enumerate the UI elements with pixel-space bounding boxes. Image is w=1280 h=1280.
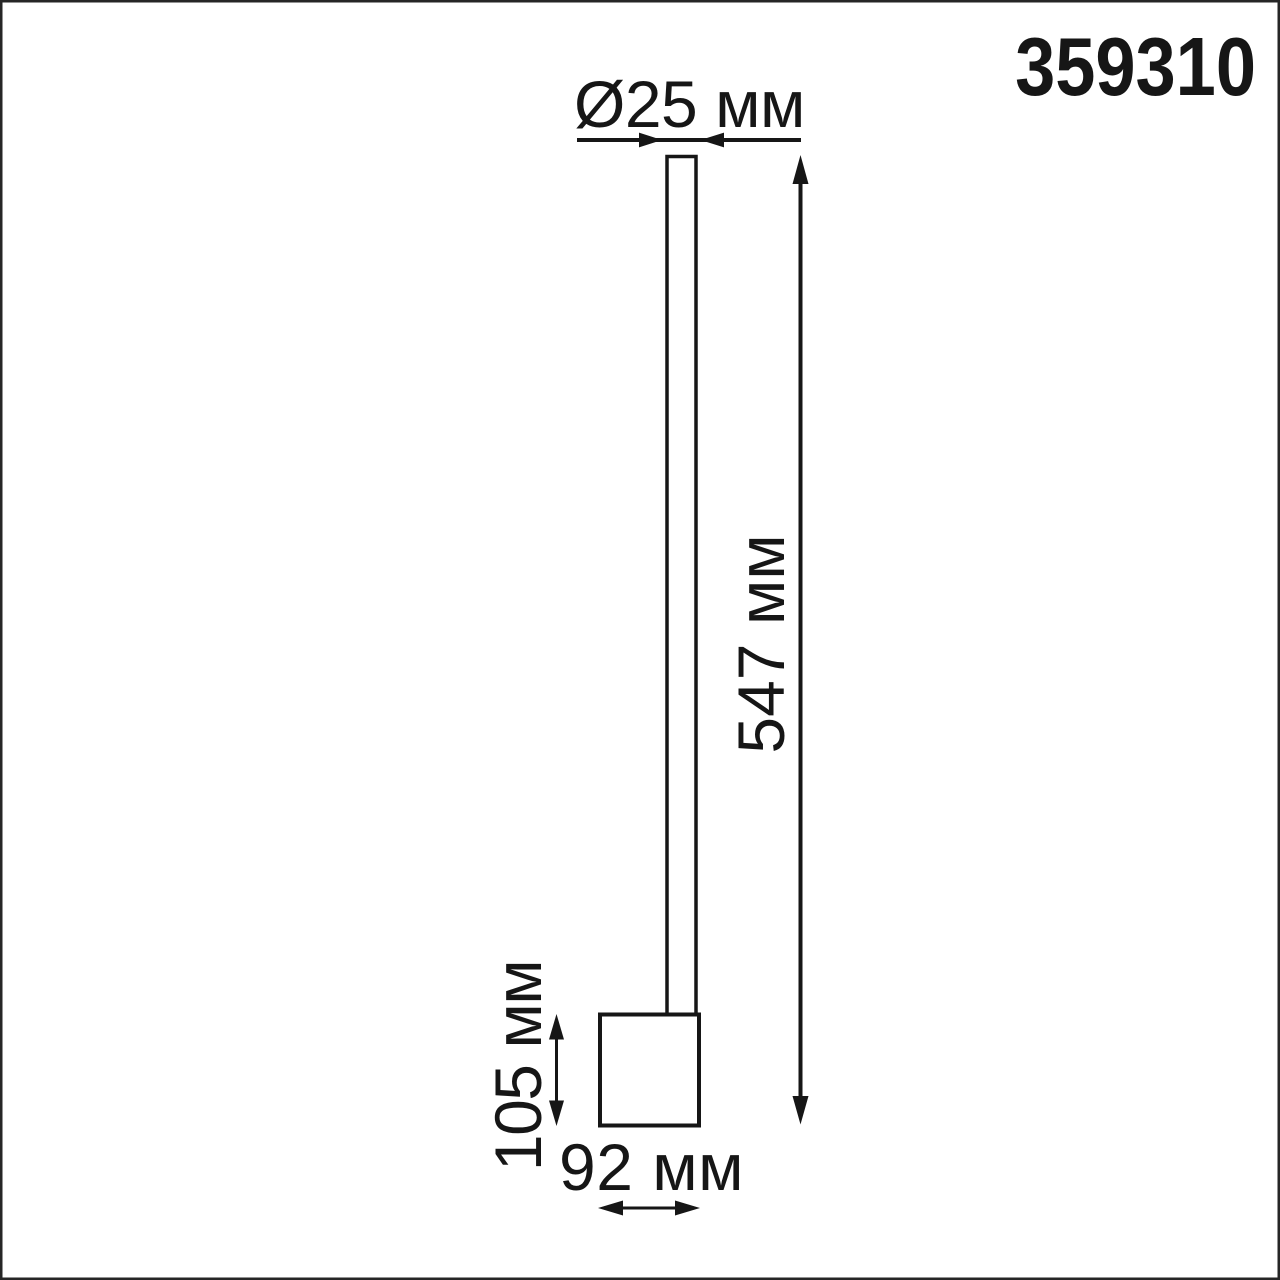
svg-text:359310: 359310 (1015, 21, 1256, 113)
svg-text:547 мм: 547 мм (724, 534, 798, 753)
svg-text:Ø25 мм: Ø25 мм (574, 67, 805, 141)
svg-text:105 мм: 105 мм (481, 961, 555, 1171)
svg-text:92 мм: 92 мм (559, 1130, 744, 1204)
